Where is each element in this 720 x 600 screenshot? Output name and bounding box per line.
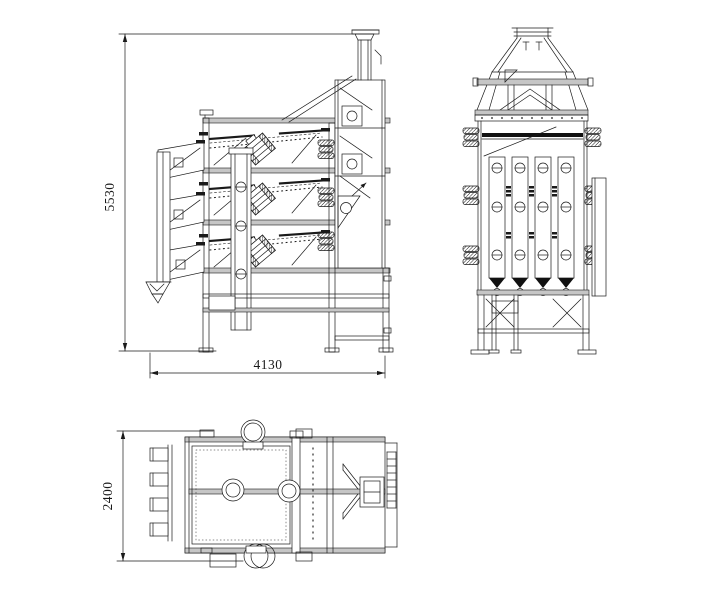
side-plate — [157, 152, 170, 282]
plan-right-extension — [385, 443, 397, 547]
bolt-dots — [481, 117, 583, 119]
discharge-column — [489, 157, 505, 296]
dimension-length: 4130 — [150, 353, 385, 378]
end-elevation-view — [463, 28, 606, 354]
dimension-width-label: 2400 — [100, 482, 115, 511]
dimension-height-label: 5530 — [102, 183, 117, 212]
plan-view — [150, 420, 397, 568]
screen-deck-1 — [199, 128, 330, 165]
base-frame-end — [471, 290, 596, 354]
outlet-stubs — [150, 445, 172, 541]
lower-frame — [199, 276, 393, 352]
inlet-hopper — [477, 28, 588, 110]
spring-stack — [318, 188, 334, 207]
dimension-length-label: 4130 — [254, 357, 283, 372]
screen-deck-3 — [199, 230, 330, 267]
drawing-sheet: 5530 4130 — [0, 0, 720, 600]
discharge-column — [535, 157, 551, 296]
side-panel — [592, 178, 606, 296]
discharge-cone — [146, 282, 171, 303]
spring-stack — [318, 140, 334, 159]
discharge-column — [512, 157, 528, 296]
cad-drawing-canvas: 5530 4130 — [0, 0, 720, 600]
spring-stack — [318, 232, 334, 251]
front-elevation-view — [146, 30, 393, 352]
screen-deck-2 — [199, 178, 330, 215]
aspiration-channel — [335, 80, 385, 268]
outlet-pipe — [352, 30, 381, 80]
discharge-columns — [489, 157, 574, 296]
discharge-column — [558, 157, 574, 296]
dimension-width: 2400 — [100, 431, 243, 561]
